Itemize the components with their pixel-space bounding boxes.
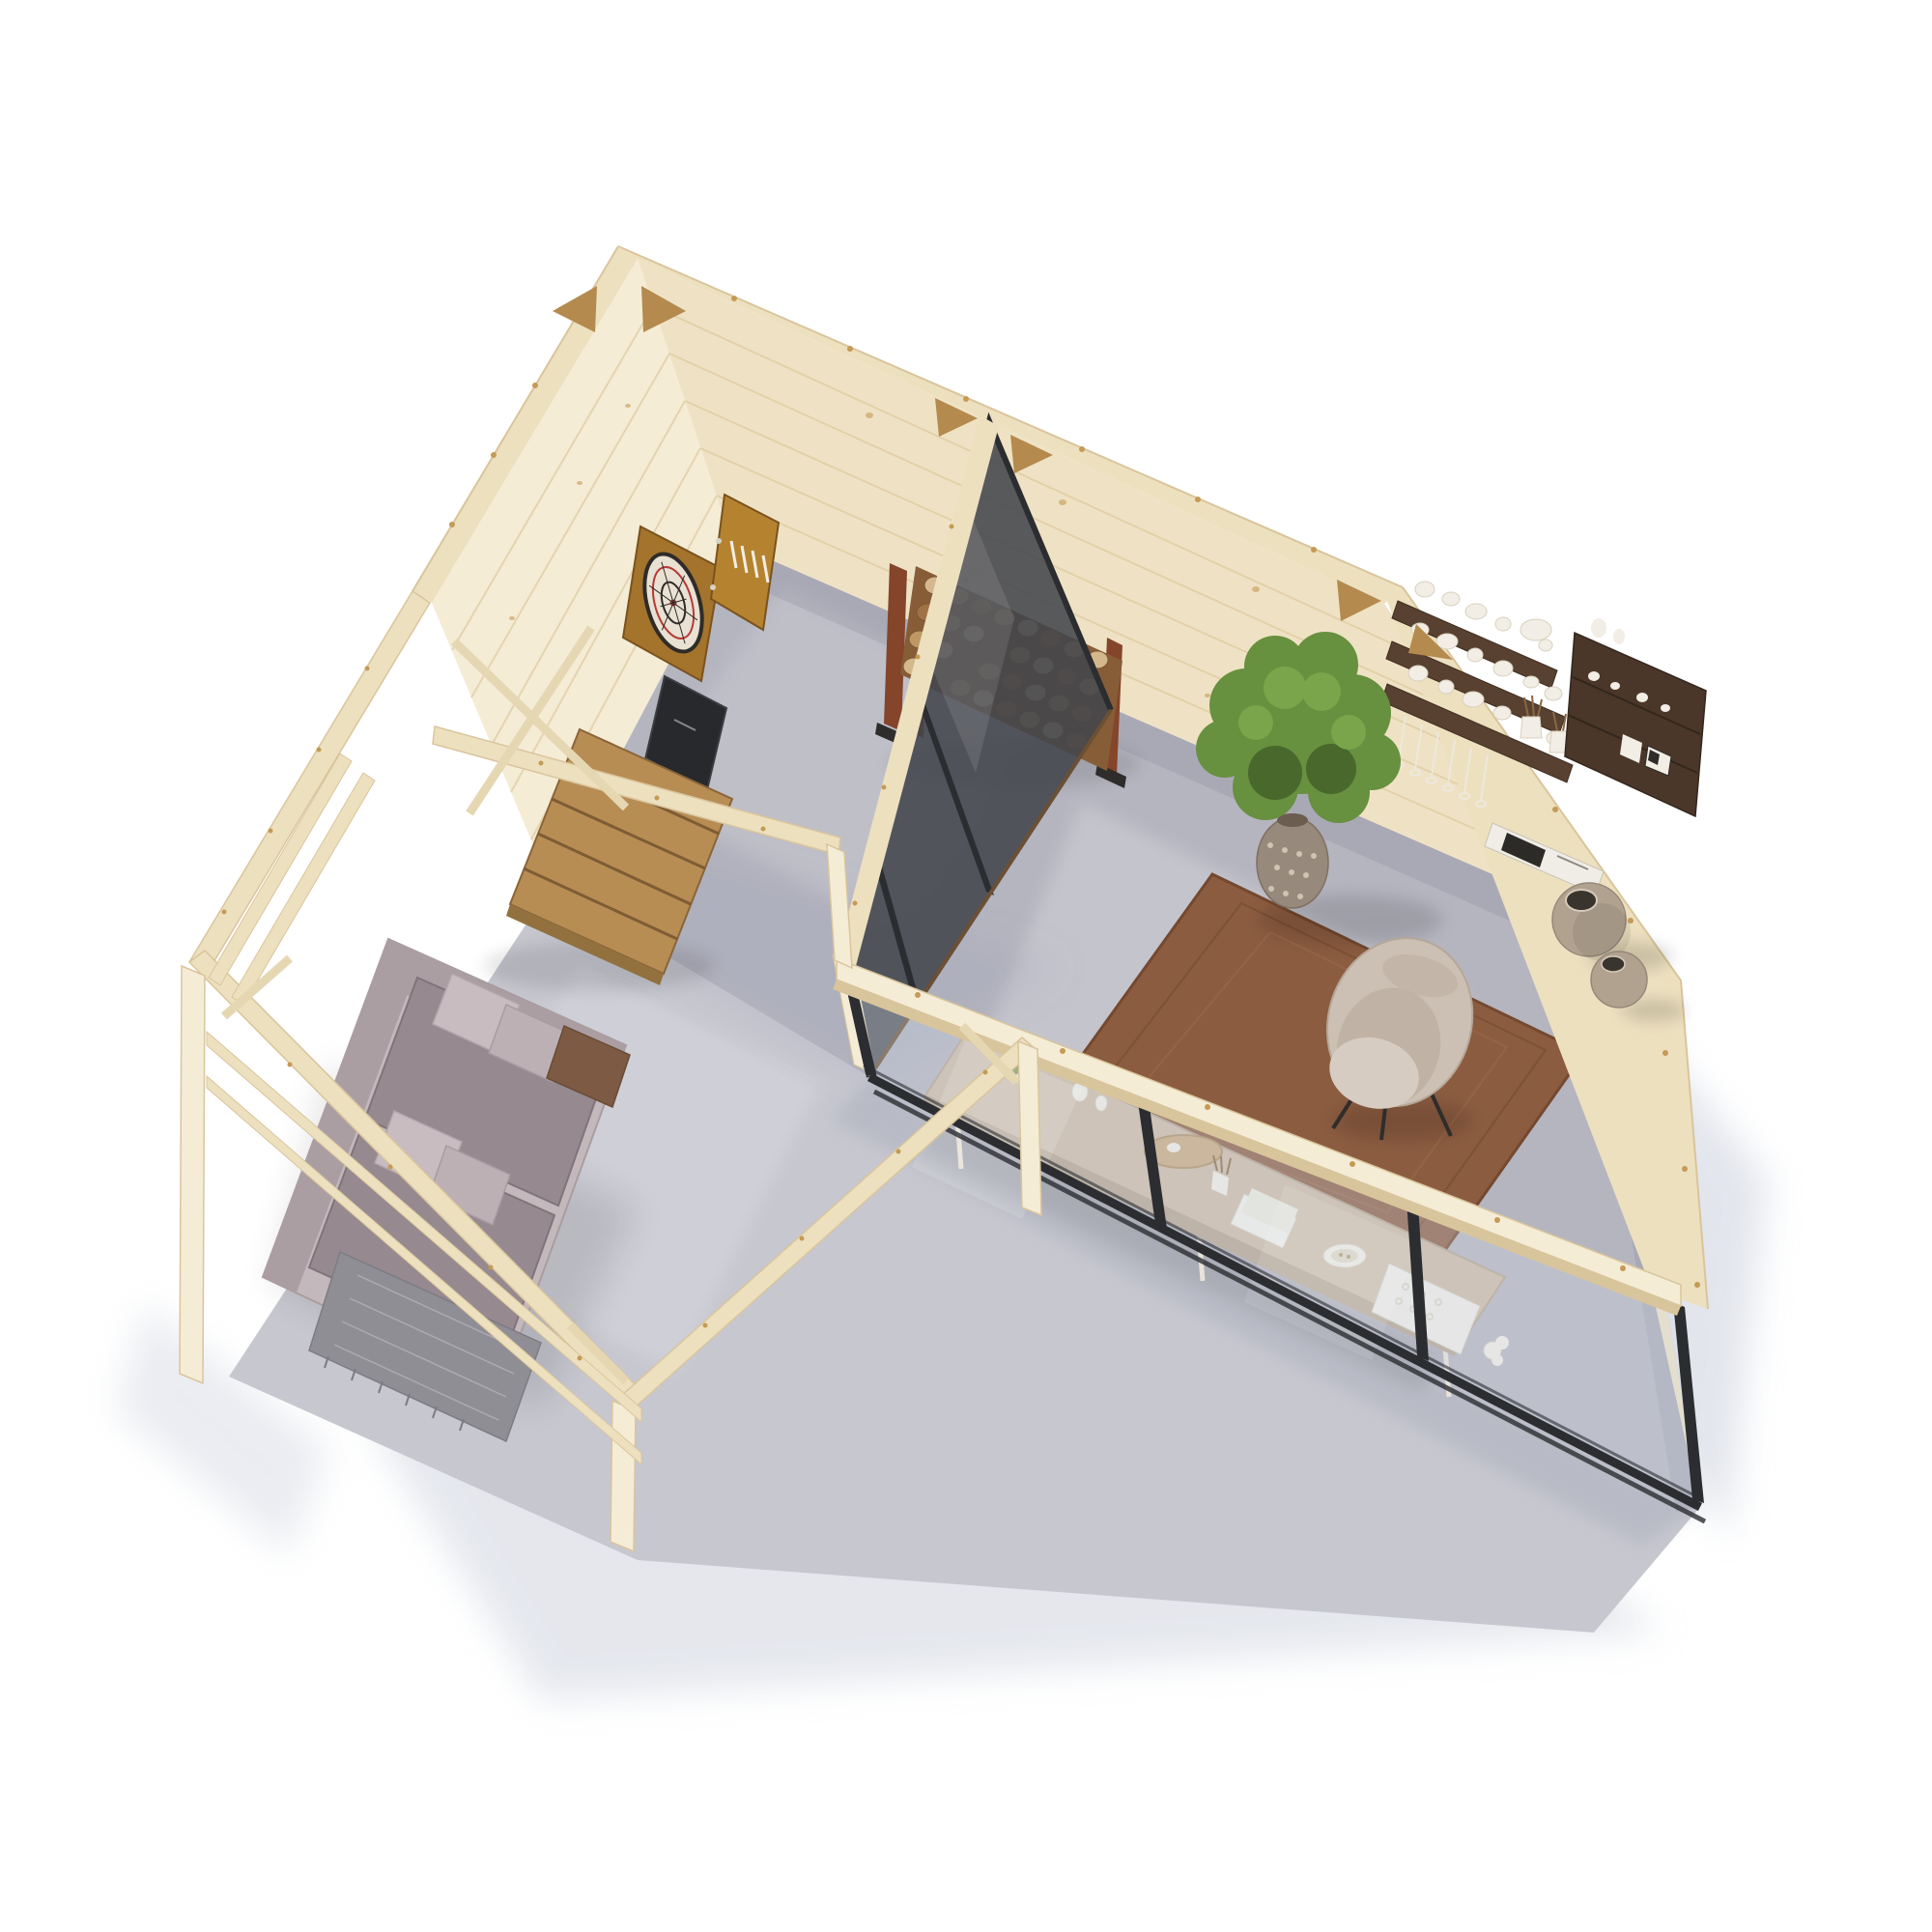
- planter-vase: [1257, 817, 1328, 908]
- pergola-post-south: [611, 1401, 636, 1551]
- pergola-post-east: [1018, 1041, 1041, 1215]
- render-stage: Aerial 3D render of an L-shaped wooden g…: [0, 0, 1932, 1932]
- display-cabinet: [1565, 618, 1706, 816]
- pergola-post-west: [180, 966, 205, 1383]
- pergola-beam-west: [189, 591, 430, 974]
- garden-house-render: [0, 0, 1932, 1932]
